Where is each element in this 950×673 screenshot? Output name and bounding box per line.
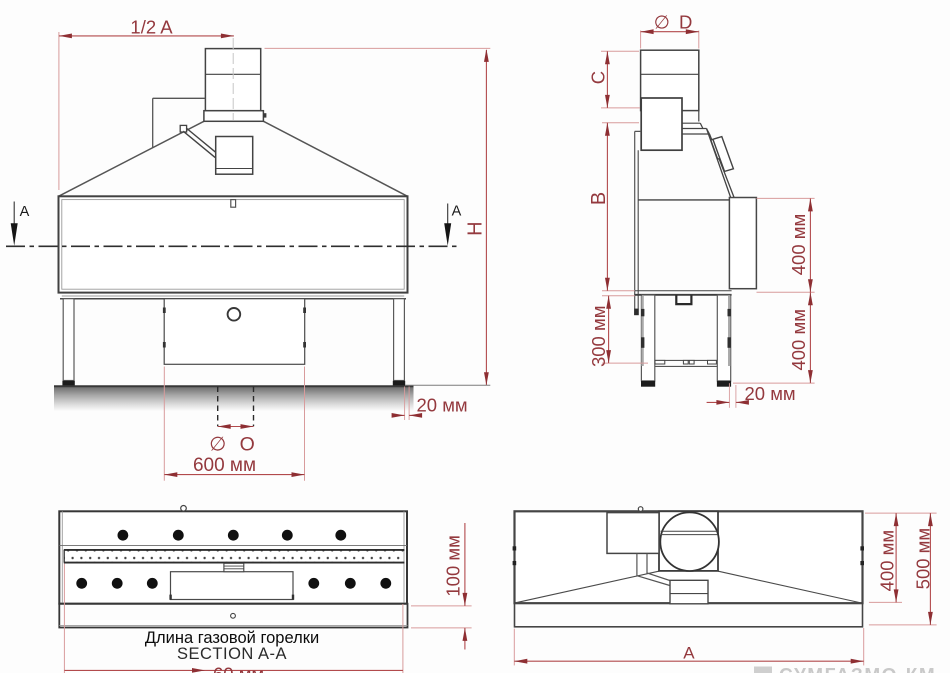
svg-text:400 мм: 400 мм <box>788 309 809 370</box>
svg-text:20 мм: 20 мм <box>745 383 796 404</box>
svg-text:A: A <box>683 644 695 663</box>
svg-text:H: H <box>465 221 487 235</box>
svg-text:60 мм: 60 мм <box>213 664 264 673</box>
svg-text:SECTION A-A: SECTION A-A <box>177 645 287 663</box>
svg-text:400 мм: 400 мм <box>877 530 898 591</box>
svg-text:∅ O: ∅ O <box>209 434 259 456</box>
svg-text:400 мм: 400 мм <box>788 214 809 275</box>
svg-text:A: A <box>452 204 462 220</box>
svg-text:C: C <box>587 71 608 84</box>
svg-text:600 мм: 600 мм <box>193 455 256 476</box>
svg-text:300 мм: 300 мм <box>588 306 609 367</box>
svg-text:1/2 A: 1/2 A <box>130 17 173 38</box>
svg-text:B: B <box>588 192 610 205</box>
svg-text:100 мм: 100 мм <box>443 535 464 596</box>
svg-text:A: A <box>20 204 30 220</box>
svg-text:20 мм: 20 мм <box>417 395 468 416</box>
svg-text:500 мм: 500 мм <box>912 528 933 589</box>
svg-text:СУМГАЗМО-КМ: СУМГАЗМО-КМ <box>779 666 936 673</box>
svg-text:∅ D: ∅ D <box>654 12 695 33</box>
